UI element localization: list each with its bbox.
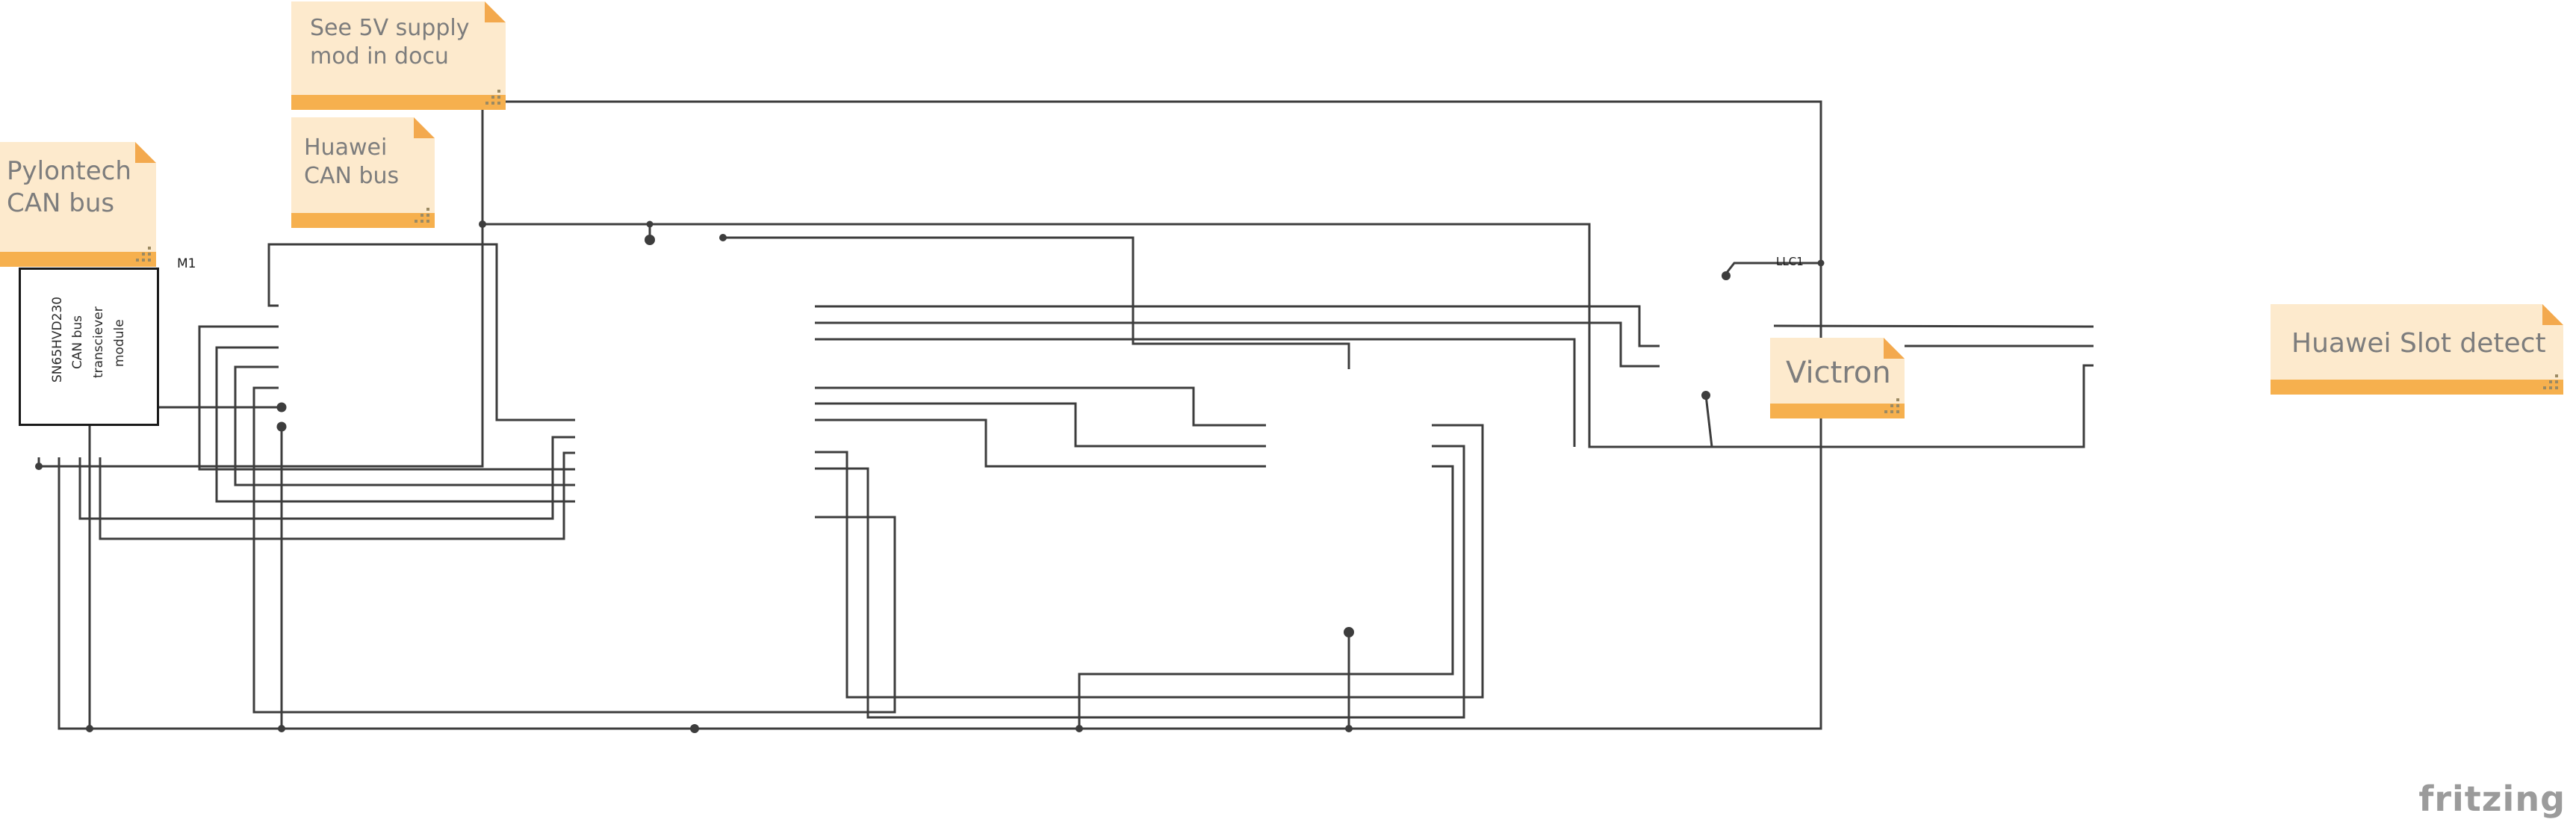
note-pylontech[interactable]: PylontechCAN bus bbox=[0, 142, 156, 267]
wire-junction-dot bbox=[479, 220, 486, 228]
m1-body-line: module bbox=[112, 319, 127, 367]
wire-junction-dot bbox=[1344, 627, 1354, 637]
wire-junction-dot bbox=[277, 403, 287, 412]
note-text: Victron bbox=[1786, 354, 1891, 392]
m1-body-line: CAN bus bbox=[70, 315, 85, 369]
note-fold-icon bbox=[2542, 304, 2563, 325]
note-text: Huawei Slot detect bbox=[2291, 327, 2546, 360]
drag-grip-icon[interactable] bbox=[426, 220, 429, 223]
wire-junction-dot bbox=[1345, 725, 1353, 732]
wire-junction-dot bbox=[278, 725, 285, 732]
drag-grip-icon[interactable] bbox=[1896, 410, 1899, 413]
note-fold-icon bbox=[485, 1, 506, 22]
note-text: See 5V supplymod in docu bbox=[310, 14, 469, 70]
note-text: PylontechCAN bus bbox=[7, 155, 131, 219]
wire[interactable] bbox=[1706, 395, 1712, 447]
wire-junction-dot bbox=[1701, 391, 1710, 400]
wire[interactable] bbox=[723, 238, 1349, 369]
wire[interactable] bbox=[1726, 263, 1821, 274]
m1-body-line: transciever bbox=[91, 306, 106, 378]
module-m1-can-transceiver[interactable] bbox=[19, 268, 159, 426]
wire[interactable] bbox=[815, 420, 1266, 466]
wire-junction-dot bbox=[35, 463, 43, 470]
wire[interactable] bbox=[1079, 466, 1453, 729]
wire-junction-dot bbox=[645, 235, 655, 245]
note-bar[interactable] bbox=[0, 252, 156, 267]
note-fold-icon bbox=[1884, 338, 1905, 359]
wire-junction-dot bbox=[277, 422, 287, 432]
wire[interactable] bbox=[269, 244, 575, 420]
wire-junction-dot bbox=[1818, 260, 1825, 267]
wire[interactable] bbox=[1774, 326, 2094, 327]
drag-grip-icon[interactable] bbox=[2555, 386, 2558, 389]
drag-grip-icon[interactable] bbox=[497, 102, 500, 105]
fritzing-watermark: fritzing bbox=[2418, 779, 2566, 819]
note-bar[interactable] bbox=[1770, 404, 1905, 418]
drag-grip-icon[interactable] bbox=[148, 259, 151, 262]
note-bar[interactable] bbox=[291, 95, 506, 110]
note-fold-icon bbox=[135, 142, 156, 163]
note-huawei-slot[interactable]: Huawei Slot detect bbox=[2271, 304, 2563, 395]
wire[interactable] bbox=[815, 446, 1464, 717]
m1-designator: M1 bbox=[177, 256, 196, 271]
note-see5v[interactable]: See 5V supplymod in docu bbox=[291, 1, 506, 110]
wire-junction-dot bbox=[690, 724, 699, 733]
note-victron[interactable]: Victron bbox=[1770, 338, 1905, 418]
note-bar[interactable] bbox=[291, 213, 435, 228]
schematic-canvas: See 5V supplymod in docu PylontechCAN bu… bbox=[0, 0, 2576, 825]
wire-junction-dot bbox=[1076, 725, 1083, 732]
wire[interactable] bbox=[90, 407, 282, 729]
wire-junction-dot bbox=[647, 221, 654, 228]
wire[interactable] bbox=[80, 437, 575, 519]
note-bar[interactable] bbox=[2271, 380, 2563, 395]
wire[interactable] bbox=[217, 347, 575, 501]
wire-label-llc1: LLC1 bbox=[1776, 255, 1804, 268]
wire-junction-dot bbox=[1722, 271, 1731, 280]
note-text: HuaweiCAN bus bbox=[304, 134, 399, 190]
m1-body-line: SN65HVD230 bbox=[50, 297, 65, 383]
note-huawei-can[interactable]: HuaweiCAN bus bbox=[291, 117, 435, 228]
wire-junction-dot bbox=[719, 234, 727, 241]
note-fold-icon bbox=[414, 117, 435, 138]
wire-junction-dot bbox=[86, 725, 93, 732]
